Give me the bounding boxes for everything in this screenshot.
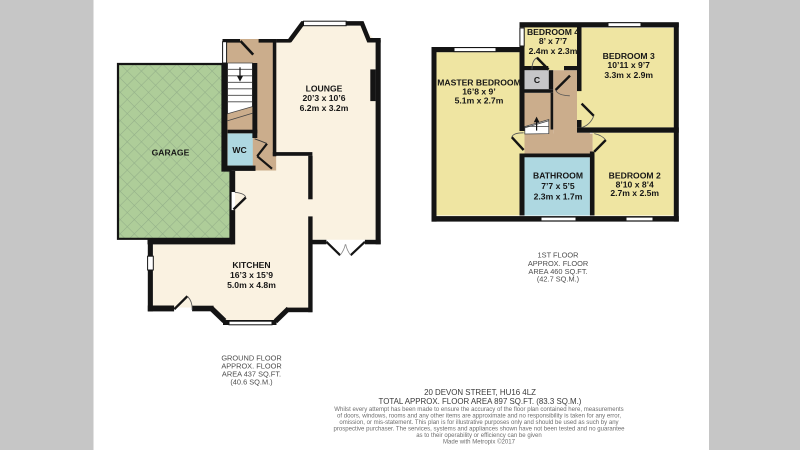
svg-text:5.0m x 4.8m: 5.0m x 4.8m bbox=[227, 280, 276, 290]
svg-text:prospective purchaser. The ser: prospective purchaser. The services, sys… bbox=[334, 427, 626, 433]
svg-text:2.7m x 2.5m: 2.7m x 2.5m bbox=[610, 188, 659, 198]
svg-text:2.3m x 1.7m: 2.3m x 1.7m bbox=[534, 192, 583, 202]
svg-text:WC: WC bbox=[232, 145, 246, 155]
svg-text:16’3 x 15’9: 16’3 x 15’9 bbox=[230, 270, 273, 280]
svg-text:(40.6 SQ.M.): (40.6 SQ.M.) bbox=[230, 378, 272, 387]
svg-text:GARAGE: GARAGE bbox=[152, 147, 190, 157]
svg-text:KITCHEN: KITCHEN bbox=[232, 260, 270, 270]
svg-text:C: C bbox=[534, 75, 540, 85]
svg-text:8’ x 7’7: 8’ x 7’7 bbox=[539, 36, 567, 46]
svg-text:Whilst every attempt has been: Whilst every attempt has been made to en… bbox=[334, 407, 623, 413]
svg-text:6.2m x 3.2m: 6.2m x 3.2m bbox=[300, 103, 349, 113]
svg-text:of doors, windows, rooms and a: of doors, windows, rooms and any other i… bbox=[337, 414, 621, 420]
svg-text:omission, or mis-statement. Th: omission, or mis-statement. This plan is… bbox=[339, 420, 619, 426]
svg-text:20 DEVON STREET, HU16 4LZ: 20 DEVON STREET, HU16 4LZ bbox=[424, 388, 536, 397]
svg-text:TOTAL APPROX. FLOOR AREA 897 S: TOTAL APPROX. FLOOR AREA 897 SQ.FT. (83.… bbox=[379, 397, 582, 406]
svg-text:Made with Metropix ©2017: Made with Metropix ©2017 bbox=[443, 439, 516, 446]
svg-text:BATHROOM: BATHROOM bbox=[533, 171, 583, 181]
svg-text:2.4m x 2.3m: 2.4m x 2.3m bbox=[529, 46, 578, 56]
svg-text:as to their operability or eff: as to their operability or efficiency ca… bbox=[416, 433, 542, 439]
svg-text:3.3m x 2.9m: 3.3m x 2.9m bbox=[604, 70, 653, 80]
svg-text:7’7 x 5’5: 7’7 x 5’5 bbox=[541, 181, 575, 191]
svg-text:20’3 x 10’6: 20’3 x 10’6 bbox=[302, 93, 345, 103]
svg-text:10’11 x 9’7: 10’11 x 9’7 bbox=[607, 60, 650, 70]
svg-text:(42.7 SQ.M.): (42.7 SQ.M.) bbox=[537, 275, 579, 284]
svg-text:5.1m x 2.7m: 5.1m x 2.7m bbox=[455, 96, 504, 106]
